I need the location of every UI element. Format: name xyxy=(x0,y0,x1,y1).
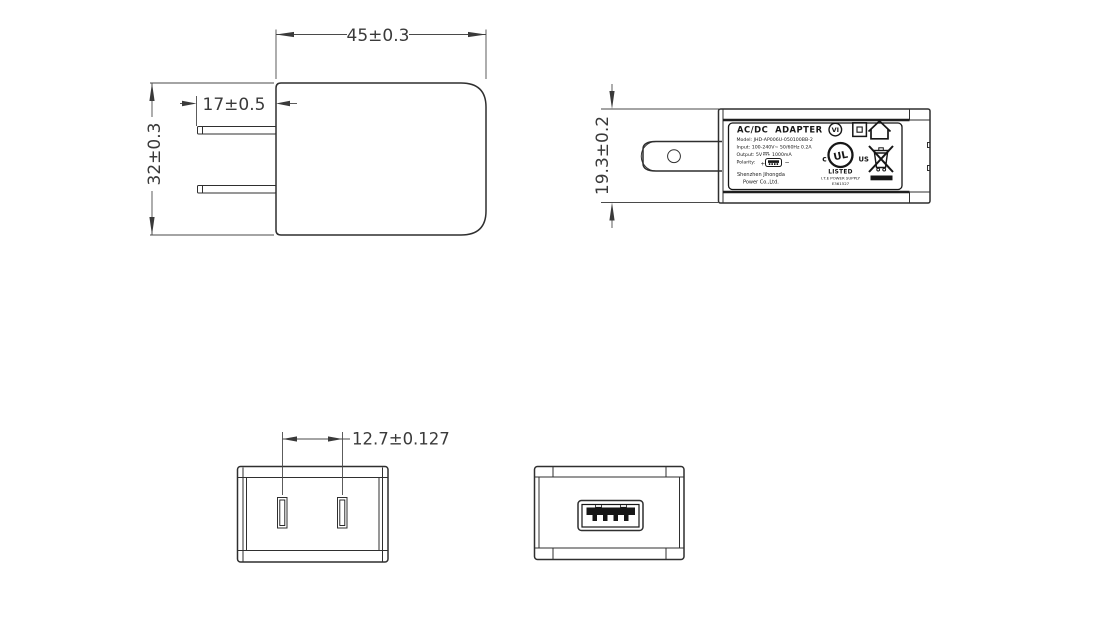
dim-pin-length-text: 17±0.5 xyxy=(203,95,266,115)
dim-body-height-text: 32±0.3 xyxy=(145,123,165,186)
usb-polarity-icon xyxy=(766,159,782,167)
indoor-use-house-icon xyxy=(869,121,891,139)
dimension-pin-spacing: 12.7±0.127 xyxy=(283,430,450,496)
usb-contact xyxy=(614,515,619,521)
usb-contact xyxy=(603,515,608,521)
usb-tongue xyxy=(587,508,636,516)
ul-listed-icon: UL c US LISTED I.T.E POWER SUPPLY E36152… xyxy=(821,143,869,186)
usb-port xyxy=(578,501,643,531)
label-company-line1: Shenzhen Jihongda xyxy=(737,172,785,178)
prong-slot-right xyxy=(338,498,348,529)
label-polarity: Polarity: xyxy=(737,160,756,166)
dim-body-width-text: 45±0.3 xyxy=(347,26,410,46)
dimension-body-width: 45±0.3 xyxy=(276,26,486,79)
label-polarity-plus: + xyxy=(761,162,766,168)
ul-file-number-text: E361527 xyxy=(832,181,850,186)
dc-symbol-icon xyxy=(763,153,770,155)
efficiency-level-icon: VI xyxy=(829,123,842,136)
label-input: Input: 100-240V~ 50/60Hz 0.2A xyxy=(737,145,813,151)
usb-contact xyxy=(624,515,629,521)
technical-drawing-page: 45±0.3 17±0.5 32±0.3 xyxy=(0,0,1100,621)
label-model: Model: JHD-AP006U-050100BB-2 xyxy=(737,137,813,143)
weee-bin-icon xyxy=(869,146,893,180)
technical-drawing: 45±0.3 17±0.5 32±0.3 xyxy=(0,0,1100,621)
weee-bar xyxy=(871,176,893,181)
plug-face-view: 12.7±0.127 xyxy=(238,430,450,563)
efficiency-level-text: VI xyxy=(832,126,839,134)
plug-blade xyxy=(641,142,722,172)
usb-face-view xyxy=(535,467,685,560)
prong-slot-left xyxy=(278,498,288,529)
rating-label-text: AC/DC ADAPTER Model: JHD-AP006U-050100BB… xyxy=(737,125,823,186)
dimension-thickness: 19.3±0.2 xyxy=(593,84,719,228)
dim-pin-spacing-text: 12.7±0.127 xyxy=(352,430,450,449)
label-output-current: 1000mA xyxy=(772,152,792,158)
label-company-line2: Power Co.,Ltd. xyxy=(743,180,779,186)
class2-double-insulation-icon xyxy=(853,123,867,137)
ul-ite-text: I.T.E POWER SUPPLY xyxy=(821,176,861,181)
top-view: 19.3±0.2 AC/DC ADAPTER Model: JHD-AP006U… xyxy=(593,84,930,228)
dimension-pin-length: 17±0.5 xyxy=(180,95,297,126)
adapter-body-outline xyxy=(276,83,486,235)
label-title: AC/DC ADAPTER xyxy=(737,125,823,135)
ul-c-text: c xyxy=(822,155,826,164)
label-polarity-minus: − xyxy=(785,160,790,167)
front-view: 45±0.3 17±0.5 32±0.3 xyxy=(145,26,486,235)
label-output: Output: 5V xyxy=(737,152,763,158)
pin-upper xyxy=(198,127,277,135)
blade-hole xyxy=(668,150,681,163)
dim-thickness-text: 19.3±0.2 xyxy=(593,116,613,195)
usb-contact xyxy=(593,515,598,521)
plug-face-outline xyxy=(238,467,389,563)
ul-us-text: US xyxy=(859,156,870,164)
pin-lower xyxy=(198,186,277,194)
ul-monogram-text: UL xyxy=(833,149,850,163)
